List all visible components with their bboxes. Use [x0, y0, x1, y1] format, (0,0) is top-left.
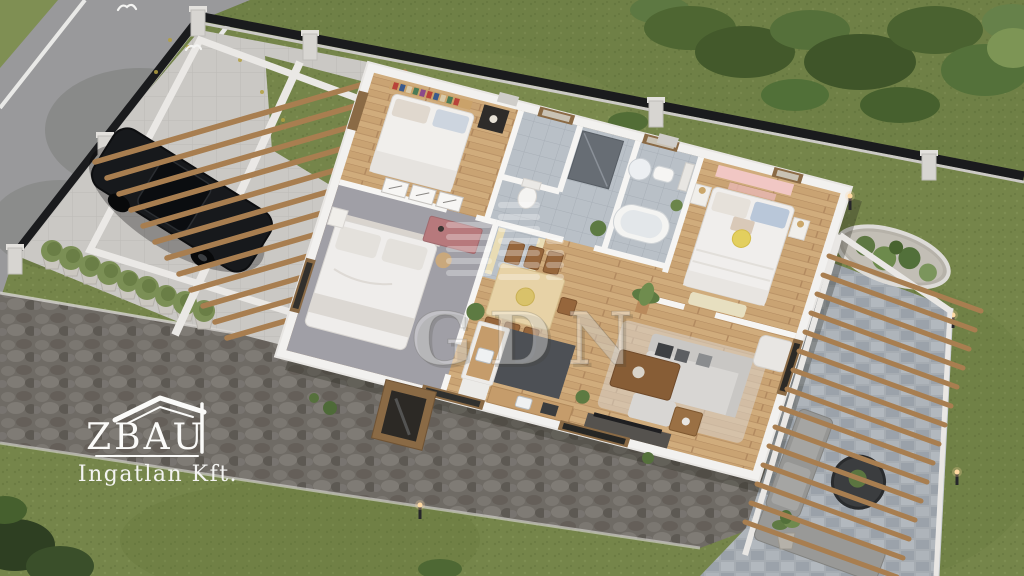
- scene-svg: GDN GDN ZBAU Ingatlan Kft.: [0, 0, 1024, 576]
- logo-subtitle-text: Ingatlan Kft.: [78, 462, 238, 487]
- aerial-house-render: GDN GDN ZBAU Ingatlan Kft.: [0, 0, 1024, 576]
- bush: [642, 452, 654, 464]
- logo-brand-text: ZBAU: [86, 417, 206, 458]
- watermark-text: GDN: [411, 296, 649, 381]
- bush: [309, 393, 319, 403]
- bush: [323, 401, 337, 415]
